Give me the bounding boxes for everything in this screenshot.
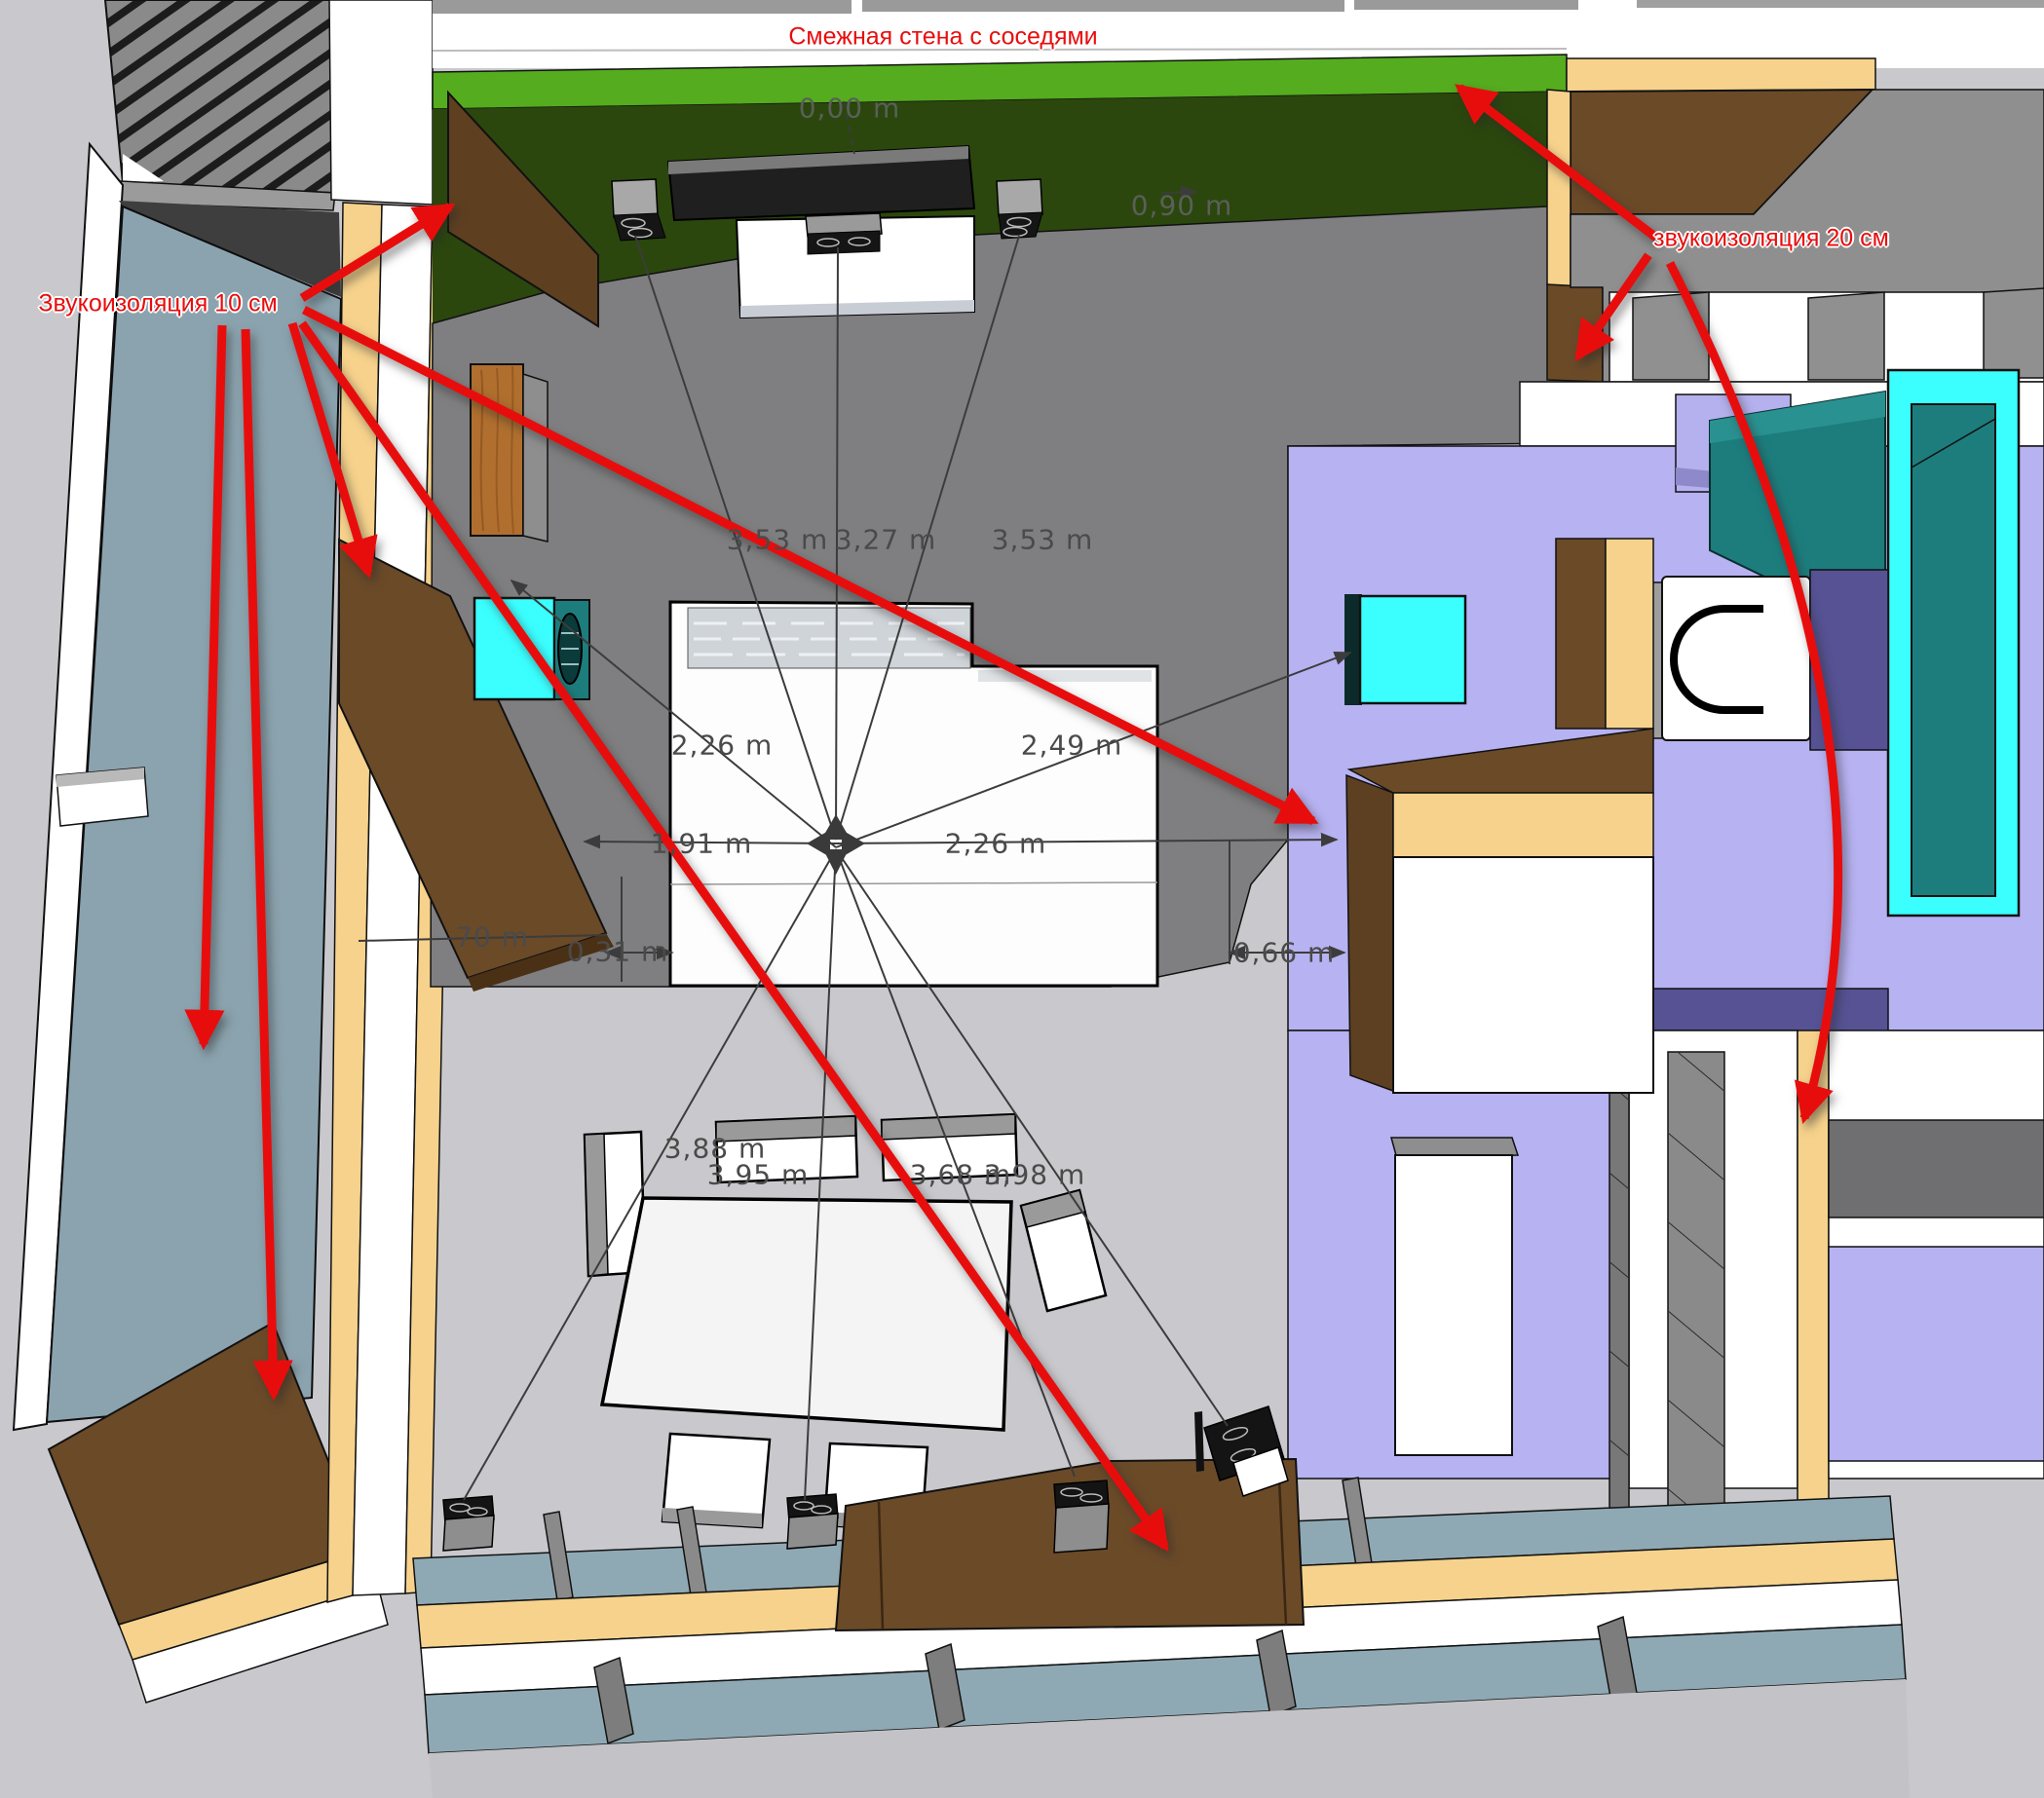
shelf-unit	[1808, 292, 1884, 380]
wood-cabinet	[471, 364, 548, 542]
sketchup-3d-viewport[interactable]: Смежная стена с соседями Звукоизоляция 1…	[0, 0, 2044, 1798]
shelf-unit	[1633, 292, 1709, 380]
hallway-wall-edge	[1798, 1030, 1829, 1539]
toilet	[1662, 577, 1810, 740]
fridge	[1395, 1155, 1512, 1455]
hallway-south	[1288, 1030, 2044, 1539]
dining-table	[602, 1198, 1011, 1430]
storage-box	[1829, 1120, 2044, 1217]
shelf-unit	[1984, 288, 2044, 378]
wall-tv	[1344, 594, 1465, 705]
louvered-blinds	[105, 0, 339, 210]
floor-plan-rendering	[0, 0, 2044, 1798]
